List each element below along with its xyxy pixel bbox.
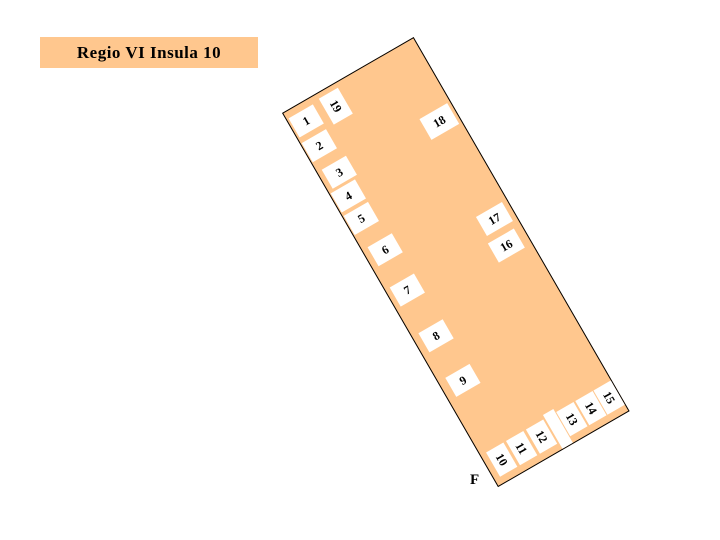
entrance-box-9[interactable]: 9 bbox=[445, 364, 480, 397]
entrance-number: 3 bbox=[334, 166, 345, 179]
insula-block: 12345678910111213141516171819 bbox=[282, 37, 630, 487]
entrance-number: 12 bbox=[533, 428, 549, 444]
entrance-number: 7 bbox=[402, 283, 413, 296]
entrance-box-8[interactable]: 8 bbox=[418, 319, 453, 352]
entrance-box-18[interactable]: 18 bbox=[419, 103, 459, 140]
entrance-number: 1 bbox=[301, 114, 312, 127]
entrance-number: 11 bbox=[514, 440, 530, 456]
entrance-number: 16 bbox=[498, 237, 514, 253]
map-title: Regio VI Insula 10 bbox=[40, 37, 258, 68]
entrance-number: 18 bbox=[431, 113, 447, 129]
entrance-box-16[interactable]: 16 bbox=[488, 229, 525, 263]
entrance-number: 15 bbox=[601, 389, 617, 405]
entrance-number: 10 bbox=[494, 451, 510, 467]
entrance-box-7[interactable]: 7 bbox=[390, 274, 425, 307]
entrance-box-6[interactable]: 6 bbox=[368, 233, 403, 266]
entrance-number: 6 bbox=[380, 243, 391, 256]
entrance-number: 8 bbox=[430, 329, 441, 342]
entrance-number: 14 bbox=[583, 400, 599, 416]
entrance-number: 4 bbox=[343, 189, 354, 202]
entrance-box-2[interactable]: 2 bbox=[302, 129, 337, 162]
entrance-box-19[interactable]: 19 bbox=[319, 88, 353, 125]
map-canvas: Regio VI Insula 10 123456789101112131415… bbox=[0, 0, 720, 540]
street-label-f: F bbox=[470, 472, 479, 489]
entrance-number: 13 bbox=[564, 411, 580, 427]
entrance-number: 5 bbox=[356, 212, 367, 225]
entrance-number: 19 bbox=[328, 98, 344, 114]
entrance-number: 2 bbox=[314, 139, 325, 152]
entrance-number: 17 bbox=[486, 211, 502, 227]
entrance-number: 9 bbox=[457, 374, 468, 387]
